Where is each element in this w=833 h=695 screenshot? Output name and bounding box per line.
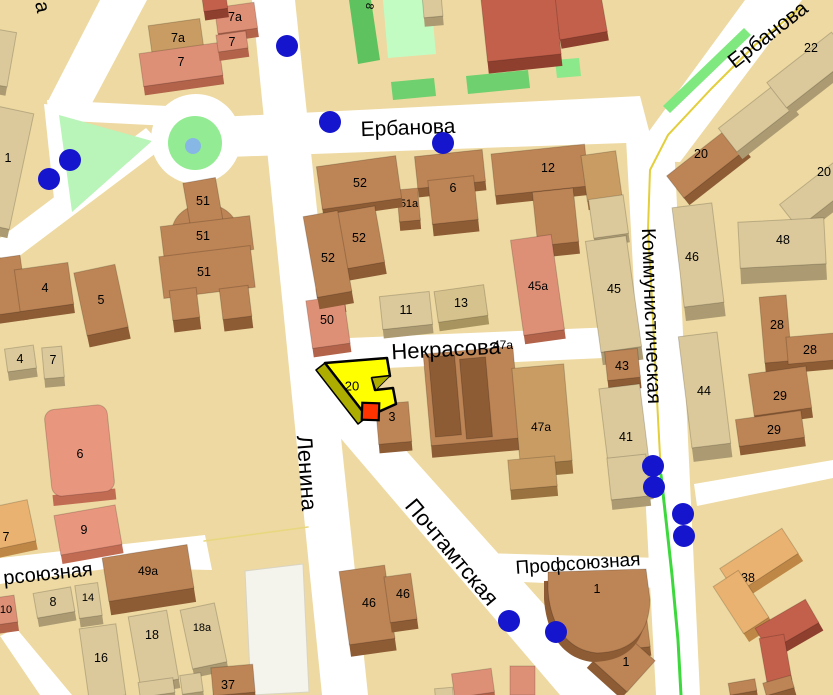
building-number-label: 45а [528, 279, 548, 293]
map-point-marker[interactable] [59, 149, 81, 171]
building[interactable] [180, 673, 205, 695]
building-number-label: 52 [353, 176, 367, 190]
building[interactable] [169, 287, 201, 332]
building-number-label: 51 [196, 194, 210, 208]
building-number-label: 16 [94, 651, 108, 665]
building-number-label: 28 [770, 318, 784, 332]
selected-point-marker[interactable] [362, 403, 380, 421]
map-point-marker[interactable] [319, 111, 341, 133]
building-number-label: 6 [77, 447, 84, 461]
building-number-label: 4 [17, 352, 24, 366]
building-number-label: 11 [400, 303, 413, 317]
building-number-label: 10 [0, 604, 12, 616]
building-number-label: 7а [228, 10, 242, 24]
building[interactable] [422, 0, 444, 27]
map-point-marker[interactable] [38, 168, 60, 190]
building-number-label: 7 [50, 353, 57, 367]
map-point-marker[interactable] [673, 525, 695, 547]
building-number-label: 51а [400, 198, 419, 210]
building-number-label: 47а [531, 420, 551, 434]
building-number-label: 1 [623, 655, 630, 669]
building-number-label: 20 [694, 147, 708, 161]
map-point-marker[interactable] [545, 621, 567, 643]
building-number-label: 44 [697, 384, 711, 398]
building-number-label: 52 [352, 231, 366, 245]
map-canvas[interactable]: 17а77а751515151а45476791081449а161818а37… [0, 0, 833, 695]
building[interactable] [202, 0, 229, 21]
building-number-label: 7 [229, 35, 236, 49]
building-number-label: 18 [145, 628, 159, 642]
building-number-label: 12 [541, 161, 555, 175]
building-number-label: 51 [197, 265, 211, 279]
building[interactable] [481, 0, 563, 74]
building-number-label: 49а [138, 564, 158, 578]
building[interactable] [510, 666, 535, 695]
building-number-label: 48 [776, 233, 790, 247]
building-number-label: 1 [5, 151, 12, 165]
map-point-marker[interactable] [672, 503, 694, 525]
building-number-label: 7 [178, 55, 185, 69]
building[interactable] [508, 456, 558, 500]
building[interactable] [219, 285, 253, 331]
map-point-marker[interactable] [498, 610, 520, 632]
map-point-marker[interactable] [276, 35, 298, 57]
building-number-label: 37 [221, 678, 235, 692]
street-name-label: Ленина [292, 434, 322, 512]
building-number-label: 14 [82, 592, 94, 604]
building-number-label: 20 [817, 165, 831, 179]
vacant-lot [245, 564, 309, 695]
building-number-label: 41 [619, 430, 633, 444]
highlighted-building-number: 20 [345, 379, 359, 394]
roundabout-fountain [185, 138, 201, 154]
building-number-label: 1 [594, 582, 601, 596]
map-point-marker[interactable] [643, 476, 665, 498]
building-number-label: 5 [98, 293, 105, 307]
building-number-label: 28 [803, 343, 817, 357]
building[interactable] [553, 0, 609, 49]
building-number-label: 45 [607, 282, 621, 296]
map-point-marker[interactable] [642, 455, 664, 477]
map-svg[interactable]: 17а77а751515151а45476791081449а161818а37… [0, 0, 833, 695]
building-number-label: 8 [50, 595, 57, 609]
building-48[interactable] [738, 218, 827, 284]
building-number-label: 29 [773, 389, 787, 403]
building-number-label: 18а [193, 622, 212, 634]
building-number-label: 7а [171, 31, 185, 45]
building-number-label: 43 [615, 359, 629, 373]
building[interactable] [435, 687, 455, 695]
building-number-label: 50 [320, 313, 334, 327]
building-number-label: 46 [685, 250, 699, 264]
map-point-marker[interactable] [432, 132, 454, 154]
building-number-label: 3 [389, 410, 396, 424]
building-number-label: 13 [454, 296, 468, 310]
building-number-label: 9 [81, 523, 88, 537]
building-number-label: 4 [42, 281, 49, 295]
building-number-label: 51 [196, 229, 210, 243]
building-number-label: 46 [396, 587, 410, 601]
building-number-label: 6 [450, 181, 457, 195]
building-number-label: 7 [3, 530, 10, 544]
building-number-label: 52 [321, 251, 335, 265]
building-number-label: 22 [804, 41, 818, 55]
building-number-label: 46 [362, 596, 376, 610]
building-number-label: 29 [767, 423, 781, 437]
